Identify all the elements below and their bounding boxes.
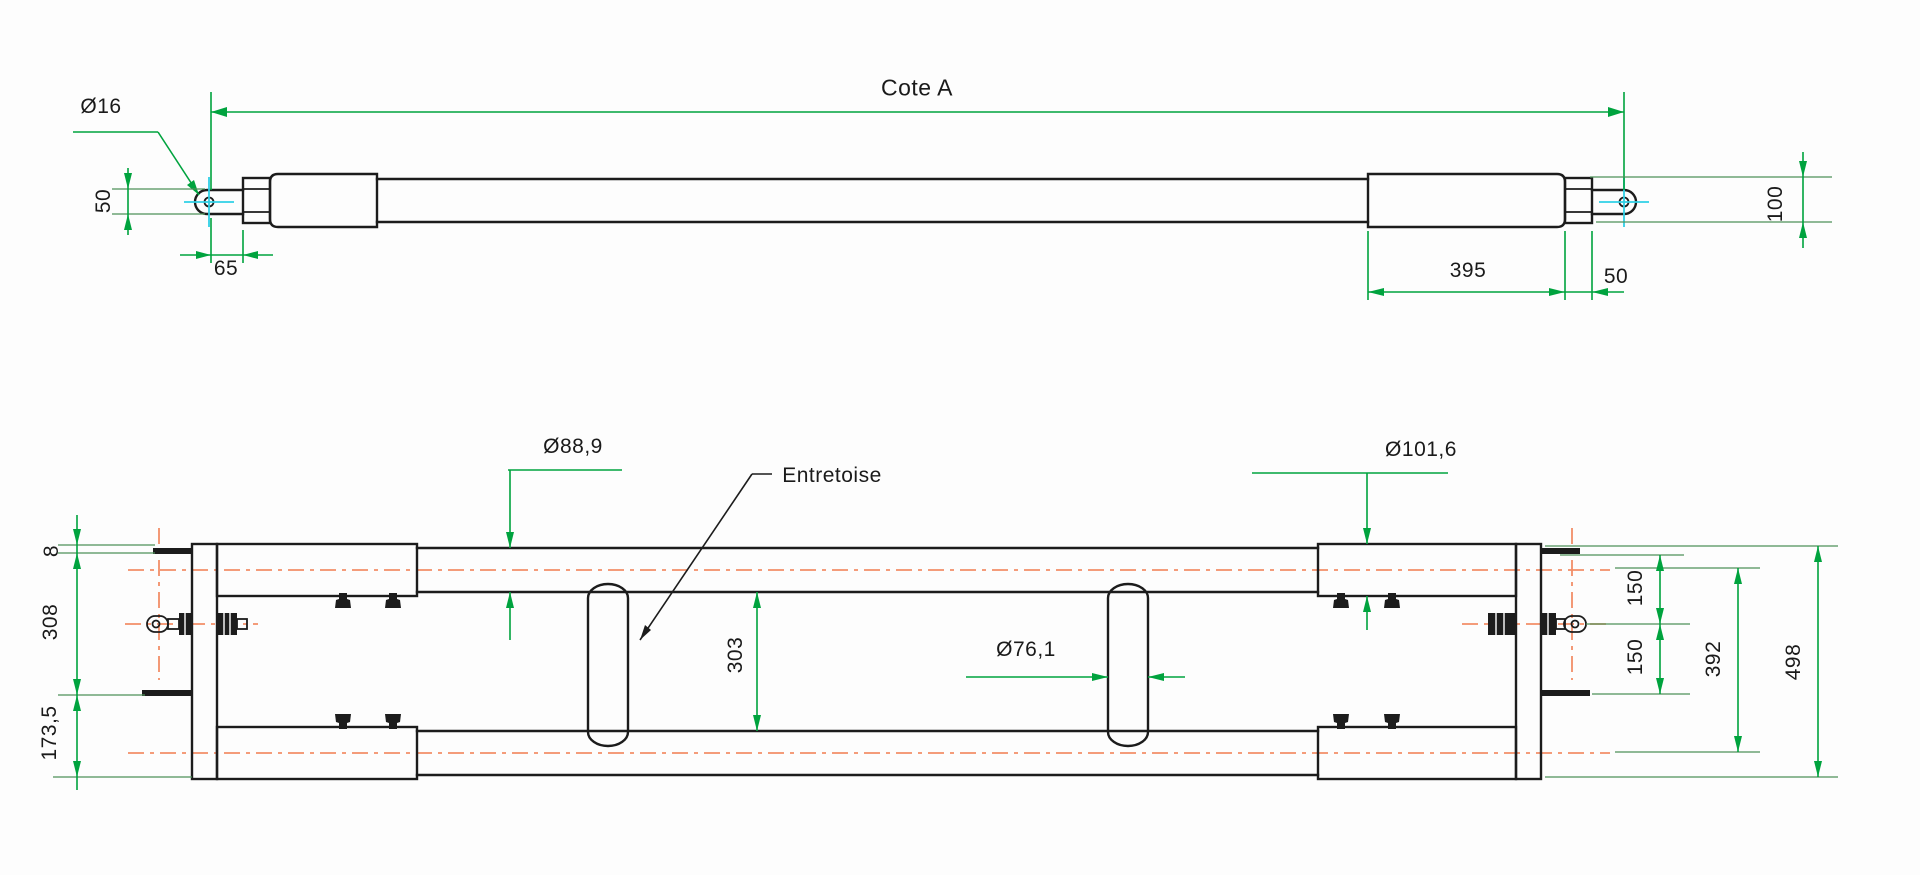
dim-sleeve-dia-label: Ø101,6 [1385,438,1457,462]
dim-overall-height-label: 498 [1782,644,1806,681]
dim-nut-width-label: 50 [1604,265,1628,289]
dim-tube-dia-label: Ø88,9 [543,435,603,459]
dim-end-height-label: 100 [1764,186,1788,223]
right-hex-nut [1565,178,1592,223]
spacer-tube-right [1108,584,1148,746]
dim-tab-bottom-label: 173,5 [38,705,62,760]
left-sleeve [270,174,377,227]
dim-eye-height-label: 50 [92,189,116,213]
drawing-geometry [0,0,1920,875]
dim-pin-hole-dia-label: Ø16 [80,95,121,119]
dim-sleeve-length-label: 395 [1450,259,1487,283]
spacer-callout-label: Entretoise [782,464,882,488]
right-end-plate [1516,544,1541,779]
dim-spacer-dia-label: Ø76,1 [996,638,1056,662]
dim-eye-offset-label: 65 [214,257,238,281]
dim-overall-length-label: Cote A [881,75,953,102]
hole-axis-crosshairs [184,177,1649,227]
left-hex-nut [243,178,270,223]
dim-eye-upper-label: 150 [1624,570,1648,607]
spacer-tube-left [588,584,628,746]
top-view-tie-rod [73,92,1832,300]
bottom-view-frame [53,470,1838,790]
right-sleeve [1368,174,1565,227]
bottom-view-dimensions [53,470,1838,790]
dim-tab-span-label: 308 [39,604,63,641]
dim-eye-lower-label: 150 [1624,639,1648,676]
dim-inner-gap-label: 303 [724,637,748,674]
dim-centers-label: 392 [1702,641,1726,678]
dim-tab-thickness-label: 8 [40,545,64,557]
spacer-callout-leader [640,474,772,640]
clamp-bolts [335,593,1400,729]
top-view-dimensions [73,92,1832,300]
cad-drawing-canvas: Cote A Ø16 50 65 395 50 100 Ø88,9 Entret… [0,0,1920,875]
left-end-plate [192,544,217,779]
